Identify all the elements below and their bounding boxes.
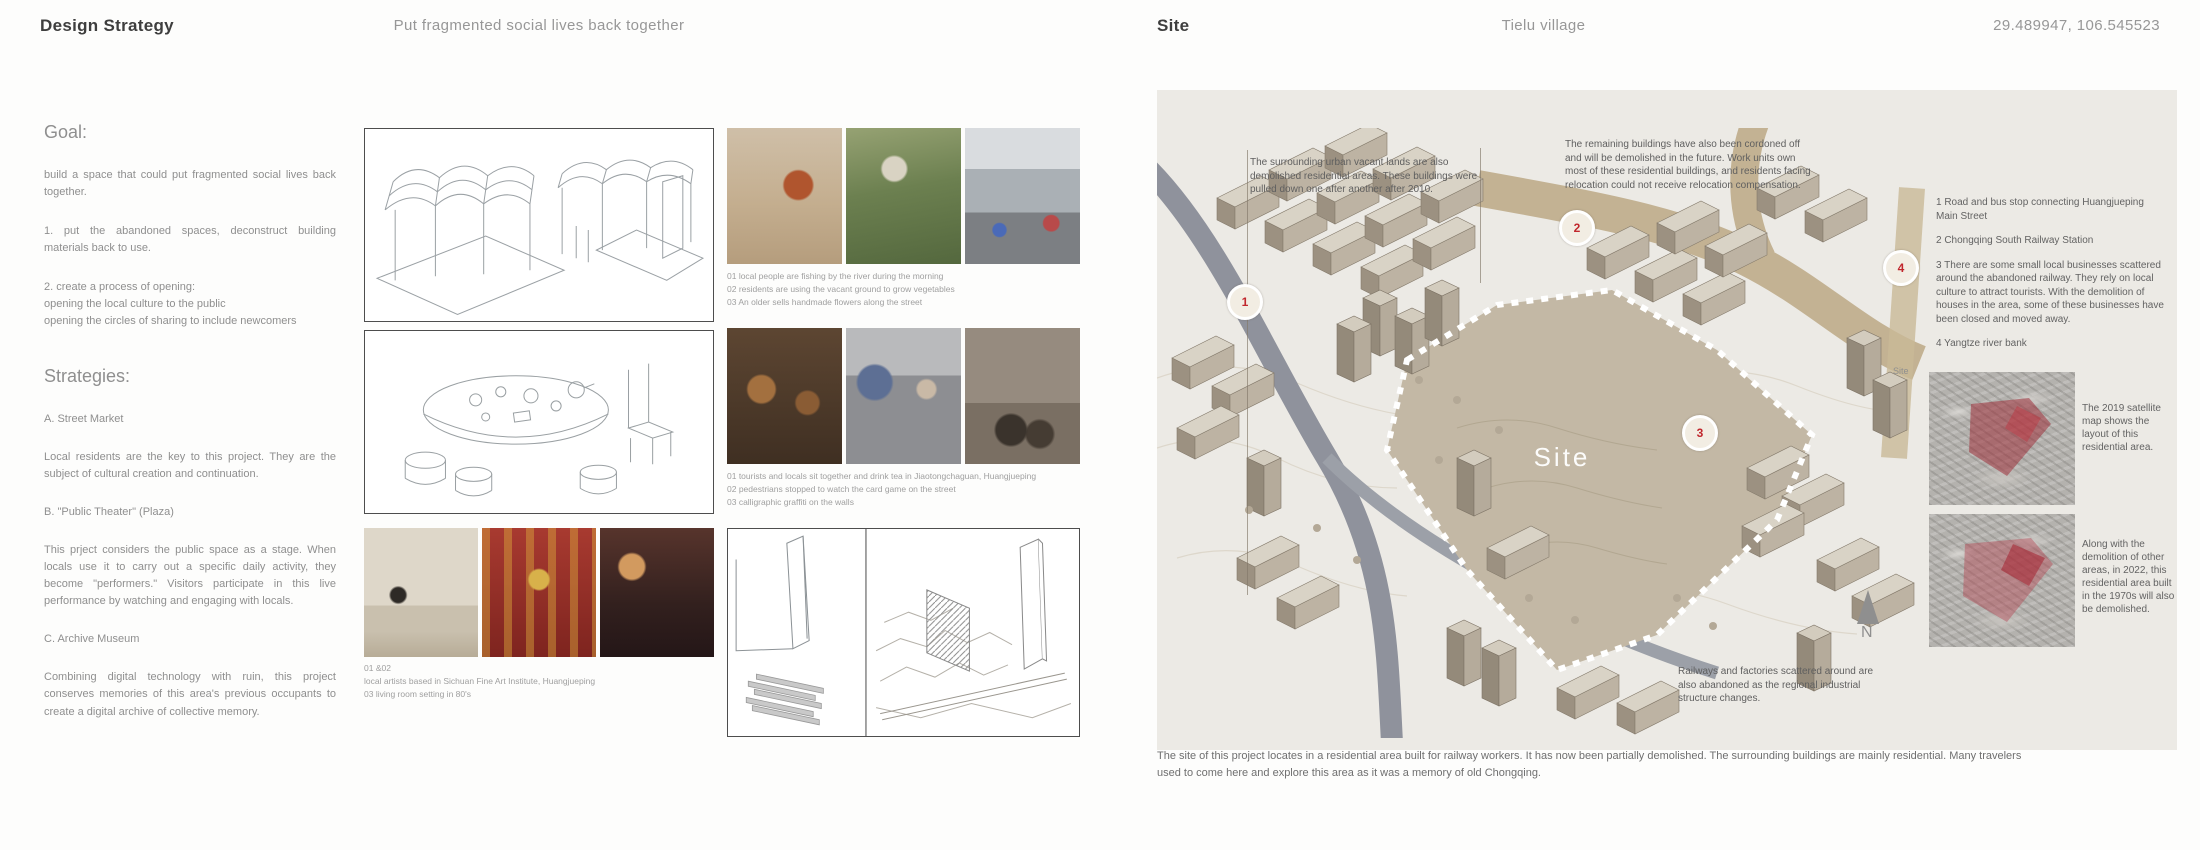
marker-number: 1 <box>1242 295 1249 309</box>
site-coordinates: 29.489947, 106.545523 <box>1790 17 2160 34</box>
site-description-footer: The site of this project locates in a re… <box>1157 748 2037 782</box>
photo-vegetable-garden <box>846 128 961 264</box>
goal-section: Goal: build a space that could put fragm… <box>44 122 336 330</box>
map-marker-3: 3 <box>1682 415 1718 451</box>
table-sketch-svg <box>365 331 713 513</box>
caption-set-1: 01 local people are fishing by the river… <box>727 270 955 308</box>
site-map-label: Site <box>1497 442 1627 473</box>
goal-heading: Goal: <box>44 122 336 143</box>
legend-item-1: 1 Road and bus stop connecting Huangjuep… <box>1936 196 2166 223</box>
site-page: The surrounding urban vacant lands are a… <box>1157 90 2177 750</box>
satellite-overlay-2022 <box>1929 514 2075 647</box>
photo-card-game <box>846 328 961 464</box>
marker-number: 3 <box>1697 426 1704 440</box>
map-annotation-top-left: The surrounding urban vacant lands are a… <box>1250 156 1502 197</box>
map-marker-2: 2 <box>1559 210 1595 246</box>
caption-line: 02 pedestrians stopped to watch the card… <box>727 483 1036 496</box>
photo-colorful-artwork <box>482 528 596 657</box>
strategy-c-label: C. Archive Museum <box>44 631 336 648</box>
site-model-map <box>1157 128 1930 738</box>
pavilion-axon-drawing <box>364 128 714 322</box>
legend-item-3: 3 There are some small local businesses … <box>1936 259 2166 327</box>
strategies-section: Strategies: A. Street Market Local resid… <box>44 366 336 721</box>
photo-calligraphy-wall <box>965 328 1080 464</box>
caption-line: 01 tourists and locals sit together and … <box>727 470 1036 483</box>
pavilion-sketch-svg <box>365 129 713 321</box>
caption-line: local artists based in Sichuan Fine Art … <box>364 675 595 688</box>
design-strategy-page: Design Strategy Put fragmented social li… <box>0 0 1130 850</box>
wall-sketch-svg <box>728 529 1079 736</box>
goal-paragraph-2: 1. put the abandoned spaces, deconstruct… <box>44 223 336 257</box>
map-annotation-top-right: The remaining buildings have also been c… <box>1565 138 1815 192</box>
photo-fishing <box>727 128 842 264</box>
caption-set-3: 01 &02 local artists based in Sichuan Fi… <box>364 662 595 700</box>
satellite-caption-2022: Along with the demolition of other areas… <box>2082 538 2178 616</box>
goal-paragraph-1: build a space that could put fragmented … <box>44 167 336 201</box>
photo-street-flowers <box>965 128 1080 264</box>
strategy-b-body: This prject considers the public space a… <box>44 542 336 610</box>
table-scene-drawing <box>364 330 714 514</box>
satellite-caption-2019: The 2019 satellite map shows the layout … <box>2082 402 2174 454</box>
marker-number: 2 <box>1574 221 1581 235</box>
strategy-a-label: A. Street Market <box>44 411 336 428</box>
compass-label: N <box>1861 624 1879 642</box>
map-marker-1: 1 <box>1227 284 1263 320</box>
portfolio-spread: { "left_page": { "header": { "title": "D… <box>0 0 2200 850</box>
north-compass: N <box>1857 590 1879 642</box>
page-subtitle: Put fragmented social lives back togethe… <box>364 17 714 34</box>
map-annotation-bottom: Railways and factories scattered around … <box>1678 665 1878 706</box>
caption-line: 01 local people are fishing by the river… <box>727 270 955 283</box>
strategy-c-body: Combining digital technology with ruin, … <box>44 669 336 720</box>
caption-set-2: 01 tourists and locals sit together and … <box>727 470 1036 508</box>
strategy-a-body: Local residents are the key to this proj… <box>44 449 336 483</box>
map-legend: 1 Road and bus stop connecting Huangjuep… <box>1936 196 2166 362</box>
satellite-overlay-2019 <box>1929 372 2075 505</box>
photo-tea-house <box>727 328 842 464</box>
satellite-map-2019 <box>1929 372 2075 505</box>
satellite-map-2022 <box>1929 514 2075 647</box>
caption-line: 03 An older sells handmade flowers along… <box>727 296 955 309</box>
legend-item-2: 2 Chongqing South Railway Station <box>1936 234 2166 248</box>
map-marker-4: 4 <box>1883 250 1919 286</box>
leader-line <box>1247 150 1248 595</box>
caption-line: 01 &02 <box>364 662 595 675</box>
photo-row-street-culture <box>727 328 1080 464</box>
caption-line: 02 residents are using the vacant ground… <box>727 283 955 296</box>
goal-paragraph-3: 2. create a process of opening: opening … <box>44 279 336 330</box>
marker-number: 4 <box>1898 261 1905 275</box>
satellite-corner-label: Site <box>1893 366 1909 376</box>
photo-artist-in-ruins <box>364 528 478 657</box>
north-arrow-icon <box>1857 590 1879 624</box>
photo-row-artists <box>364 528 714 657</box>
photo-row-daily-life <box>727 128 1080 264</box>
page-title: Design Strategy <box>40 16 174 36</box>
strategy-b-label: B. "Public Theater" (Plaza) <box>44 504 336 521</box>
legend-item-4: 4 Yangtze river bank <box>1936 337 2166 351</box>
caption-line: 03 living room setting in 80's <box>364 688 595 701</box>
strategies-heading: Strategies: <box>44 366 336 387</box>
wall-material-drawing <box>727 528 1080 737</box>
photo-living-room-80s <box>600 528 714 657</box>
caption-line: 03 calligraphic graffiti on the walls <box>727 496 1036 509</box>
